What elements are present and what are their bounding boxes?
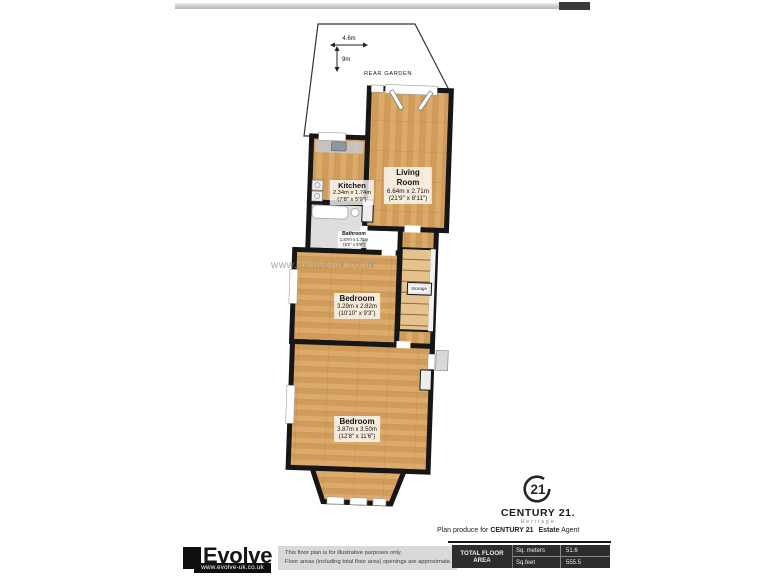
kitchen-window: [319, 132, 346, 141]
area-table-row: Sq.feet 555.5: [513, 557, 610, 568]
garden-title: REAR GARDEN: [364, 71, 412, 77]
bathtub: [312, 205, 348, 219]
bay-window-pane: [327, 497, 344, 505]
area-unit: Sq. meters: [513, 548, 560, 554]
bedroom-front-floor: [288, 341, 432, 472]
c21-number: 21: [530, 482, 546, 497]
kitchen-label: Kitchen 2.34m x 1.74m (7'8" x 5'9"): [330, 180, 374, 205]
bedroom-chimney-breast: [420, 370, 432, 390]
area-unit: Sq.feet: [513, 560, 560, 566]
kitchen-sink: [331, 142, 346, 152]
disclaimer-line2: Floor areas (including total floor area)…: [285, 558, 457, 567]
garden-depth-label: 9m: [342, 57, 350, 63]
disclaimer-line1: This floor plan is for illustrative purp…: [285, 549, 457, 558]
living-room-label: Living Room 6.64m x 2.71m (21'9" x 8'11"…: [384, 167, 432, 204]
total-floor-area-table: TOTAL FLOOR AREA Sq. meters 51.6 Sq.feet…: [452, 545, 610, 568]
area-table-title: TOTAL FLOOR AREA: [452, 545, 512, 568]
porch-step: [436, 350, 449, 370]
century21-logo-icon: 21: [519, 473, 557, 507]
century21-division: Heritage: [477, 519, 599, 525]
garden-width-label: 4.6m: [342, 36, 355, 42]
bedroom-middle-label: Bedroom 3.29m x 2.82m (10'10" x 9'3"): [334, 293, 380, 319]
front-door: [428, 354, 436, 369]
bay-window-pane: [373, 498, 386, 505]
disclaimer-box: This floor plan is for illustrative purp…: [278, 546, 457, 570]
floorplan-page: 4.6m 9m REAR GARDEN: [0, 0, 768, 576]
bedroom-front-window: [286, 385, 295, 423]
bedroom-middle-doorway: [382, 248, 396, 255]
evolve-url-bar: www.evolve-uk.co.uk: [194, 563, 271, 573]
basin: [351, 208, 359, 216]
living-window: [371, 85, 383, 92]
area-value: 555.5: [560, 557, 610, 568]
storage-label: Storage: [410, 286, 428, 292]
watermark: www.evolve-uk.co.uk: [271, 260, 376, 271]
bay-window-pane: [350, 497, 367, 505]
area-value: 51.6: [560, 545, 610, 556]
floor-plan-graphic: 4.6m 9m REAR GARDEN: [0, 0, 768, 576]
bathroom-label: Bathroom 1.87m x 1.75m (6'2" x 5'9"): [338, 231, 370, 248]
bedroom-front-label: Bedroom 3.87m x 3.50m (12'8" x 11'6"): [334, 416, 380, 442]
footer-rule: [448, 541, 611, 543]
kitchen-appliance: [312, 180, 323, 190]
kitchen-appliance: [311, 191, 322, 201]
living-hall-doorway: [404, 225, 420, 233]
century21-wordmark: CENTURY 21.: [477, 507, 599, 519]
area-table-row: Sq. meters 51.6: [513, 545, 610, 557]
bedroom-front-doorway: [396, 341, 410, 348]
bedroom-middle-window: [289, 269, 298, 303]
plan-credit-line: Plan produce for CENTURY 21Estate Agent: [437, 527, 579, 534]
living-room-floor: [365, 88, 452, 231]
